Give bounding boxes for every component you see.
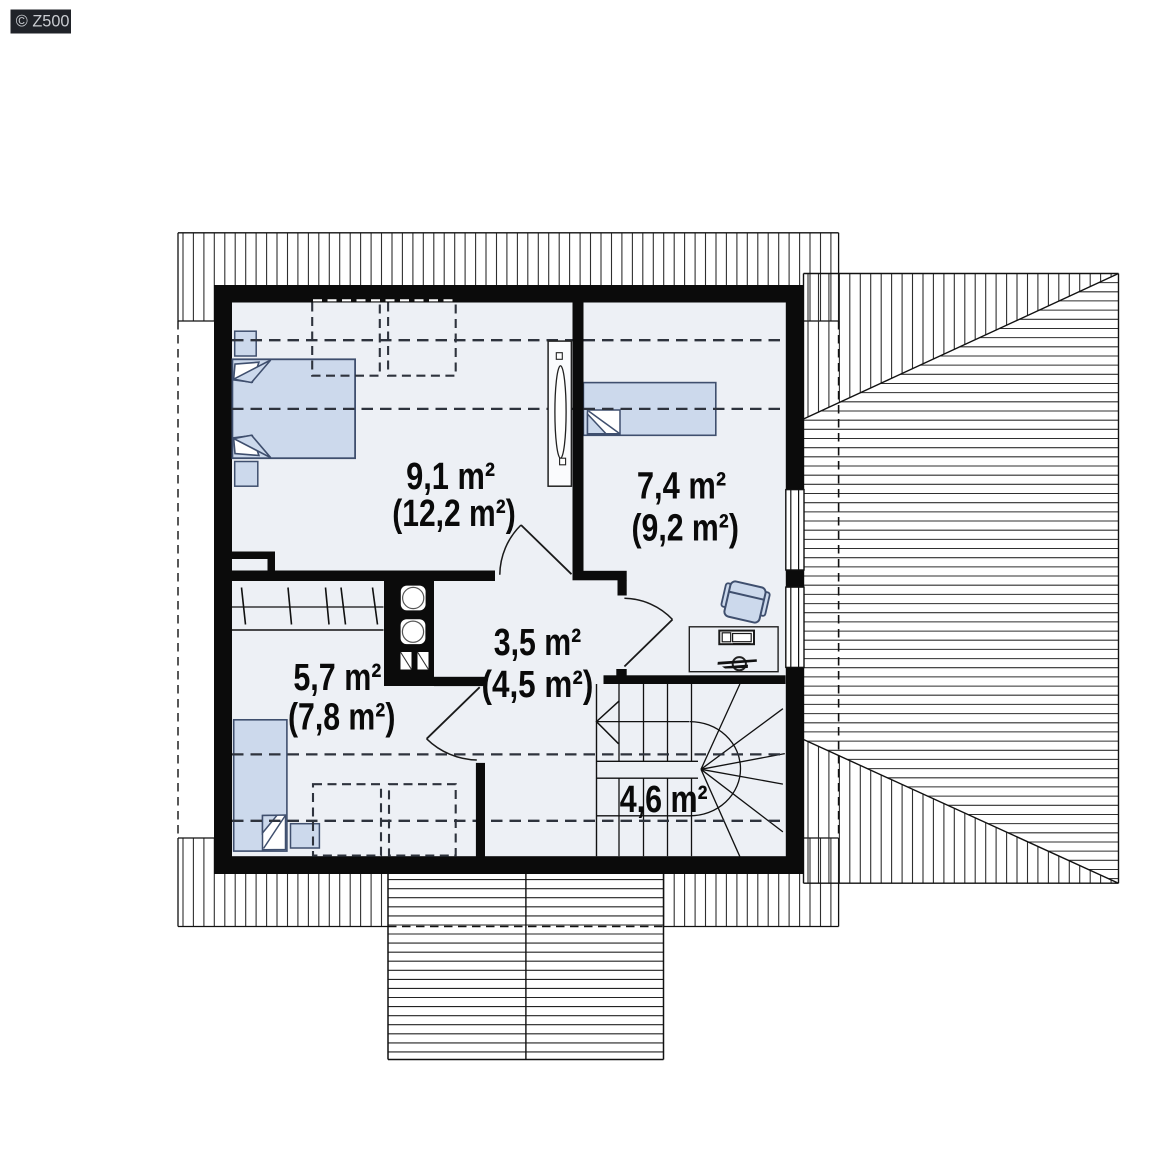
svg-text:(9,2 m²): (9,2 m²) bbox=[631, 507, 739, 549]
svg-text:5,7 m²: 5,7 m² bbox=[293, 657, 381, 699]
svg-text:(12,2 m²): (12,2 m²) bbox=[392, 493, 516, 535]
svg-text:9,1 m²: 9,1 m² bbox=[406, 456, 495, 498]
svg-text:4,6 m²: 4,6 m² bbox=[620, 779, 708, 821]
svg-text:© Z500: © Z500 bbox=[16, 12, 70, 30]
svg-text:(7,8 m²): (7,8 m²) bbox=[288, 697, 396, 739]
svg-text:3,5 m²: 3,5 m² bbox=[494, 622, 582, 664]
svg-text:7,4 m²: 7,4 m² bbox=[637, 465, 726, 507]
svg-text:(4,5 m²): (4,5 m²) bbox=[482, 664, 594, 706]
